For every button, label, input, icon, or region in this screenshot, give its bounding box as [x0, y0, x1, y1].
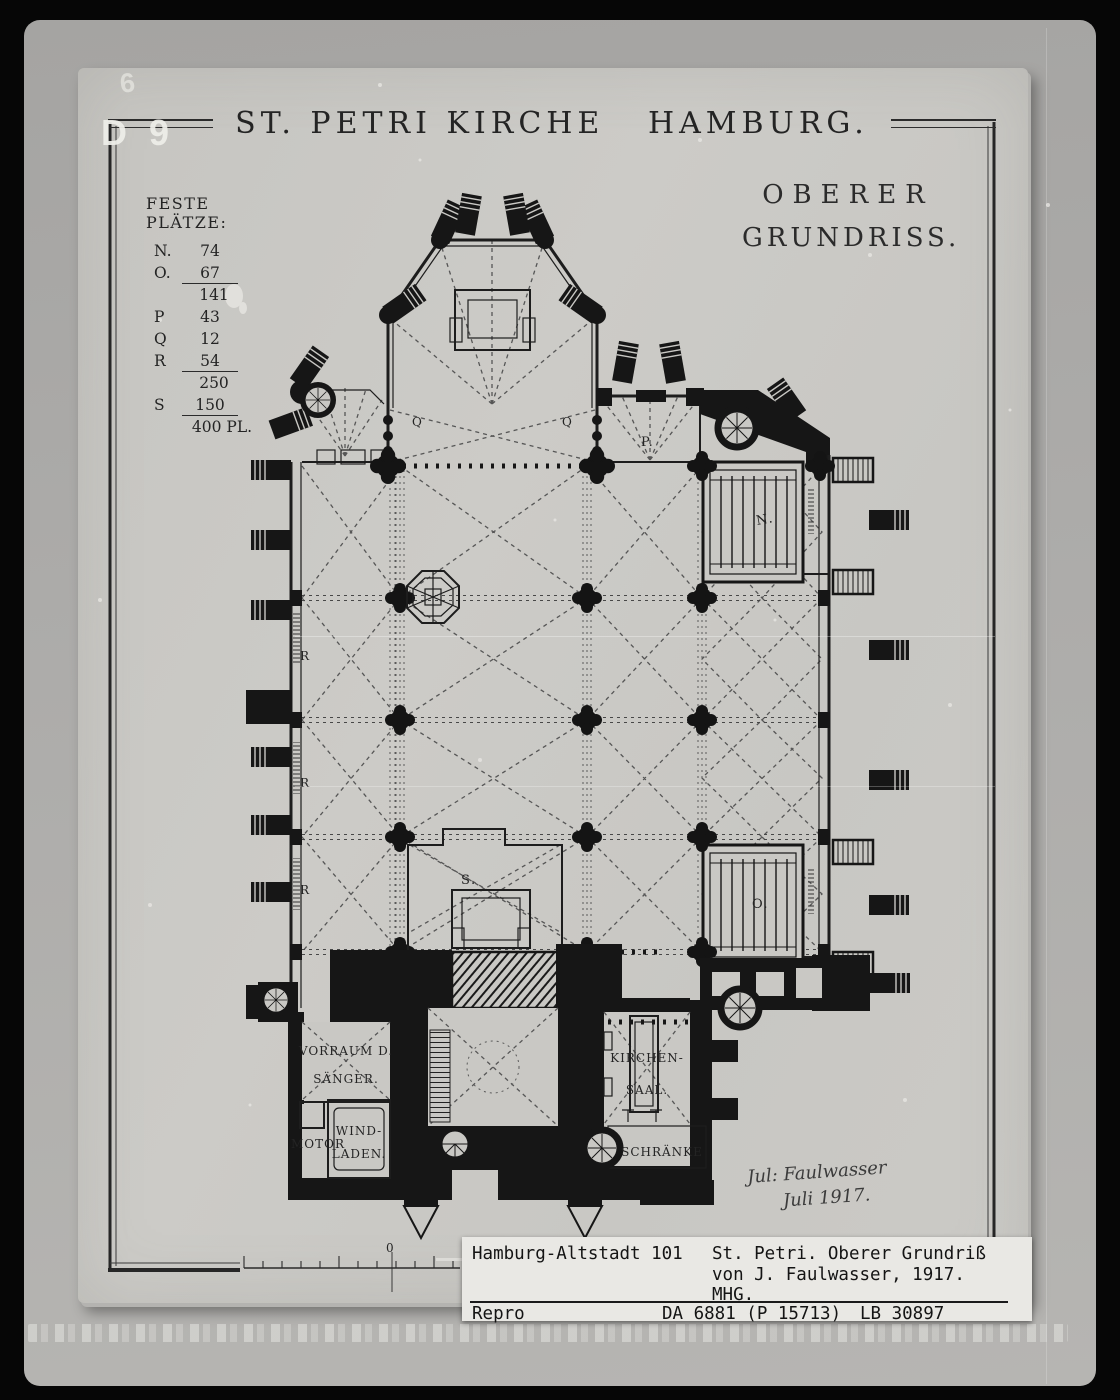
seat-row: N. 74 [146, 242, 296, 264]
seat-row-value: 250 [186, 374, 242, 392]
scratch-line [295, 786, 995, 787]
corner-mark-d9: D 9 [101, 112, 175, 154]
seat-row: O. 67 [146, 264, 296, 286]
archive-location: Hamburg-Altstadt 101 [472, 1244, 683, 1264]
seat-row-label: S [154, 396, 165, 414]
seat-row: R 54 [146, 352, 296, 374]
seat-row: S 150 [146, 396, 296, 418]
seat-row-value: 54 [182, 352, 238, 372]
archive-label-divider [470, 1301, 1008, 1303]
label-q-left: Q [412, 415, 423, 429]
seat-row-label: O. [154, 264, 171, 282]
seat-row-total: 400 PL. [146, 418, 296, 440]
archive-title-2: von J. Faulwasser, 1917. [712, 1265, 965, 1285]
seat-row-label: P [154, 308, 164, 326]
archival-photo: 0 [0, 0, 1120, 1400]
label-kirchensaal-1: KIRCHEN- [610, 1051, 684, 1065]
seat-row: P 43 [146, 308, 296, 330]
archive-lb-number: LB 30897 [860, 1304, 944, 1324]
seat-row-value: 74 [182, 242, 238, 260]
label-n: N. [755, 511, 775, 529]
seat-row: Q 12 [146, 330, 296, 352]
architect-signature: Jul: Faulwasser Juli 1917. [747, 1157, 890, 1214]
scale-zero-label: 0 [386, 1241, 395, 1255]
seat-row-value: 150 [182, 396, 238, 416]
seat-row-subtotal: 141 [146, 286, 296, 308]
scale-bar [244, 1252, 460, 1292]
page-title: ST. PETRI KIRCHE HAMBURG. [213, 106, 891, 141]
label-s: S. [461, 873, 477, 888]
seat-row-label: Q [154, 330, 167, 348]
archive-repro: Repro [472, 1304, 525, 1324]
chapel-p [596, 341, 830, 466]
label-windladen-1: WIND- [336, 1124, 382, 1138]
gallery-n [703, 462, 803, 582]
heading-line-1: OBERER [742, 180, 954, 210]
label-kirchensaal-2: SAAL. [626, 1083, 668, 1097]
label-r-1: R [300, 649, 310, 663]
seat-table-heading: FESTE PLÄTZE: [146, 194, 296, 232]
scratch-line [295, 636, 995, 637]
title-row: ST. PETRI KIRCHE HAMBURG. [108, 100, 996, 146]
plan-heading: OBERER GRUNDRISS. [742, 180, 954, 253]
seat-count-table: FESTE PLÄTZE: N. 74 O. 67 141 P 43 Q 12 … [146, 194, 296, 440]
label-vorraum-1: VORRAUM D. [298, 1044, 393, 1058]
seat-row-subtotal: 250 [146, 374, 296, 396]
seat-row-value: 67 [182, 264, 238, 284]
label-q-right: Q [562, 415, 573, 429]
seat-row-label: N. [154, 242, 172, 260]
label-schraenke: SCHRÄNKE [621, 1143, 703, 1159]
label-o: O. [752, 897, 769, 912]
seat-row-value: 43 [182, 308, 238, 326]
seat-row-label: R [154, 352, 166, 370]
seat-row-value: 400 PL. [182, 418, 262, 436]
archive-title-1: St. Petri. Oberer Grundriß [712, 1244, 986, 1264]
archive-number: DA 6881 (P 15713) [662, 1304, 841, 1324]
corner-mark-6: 6 [118, 67, 136, 99]
seat-row-value: 141 [186, 286, 242, 304]
title-rule-right [891, 119, 996, 128]
label-tick [436, 1258, 462, 1261]
seat-row-value: 12 [182, 330, 238, 348]
photo-edge-pattern [28, 1324, 1068, 1342]
scratch-line [1046, 28, 1047, 1384]
label-r-2: R [300, 776, 310, 790]
label-windladen-2: LADEN. [332, 1147, 387, 1161]
label-r-3: R [300, 883, 310, 897]
label-p: P. [641, 435, 654, 450]
heading-line-2: GRUNDRISS. [742, 223, 954, 253]
archive-label: Hamburg-Altstadt 101 St. Petri. Oberer G… [462, 1237, 1032, 1321]
label-vorraum-2: SÄNGER. [313, 1070, 379, 1086]
